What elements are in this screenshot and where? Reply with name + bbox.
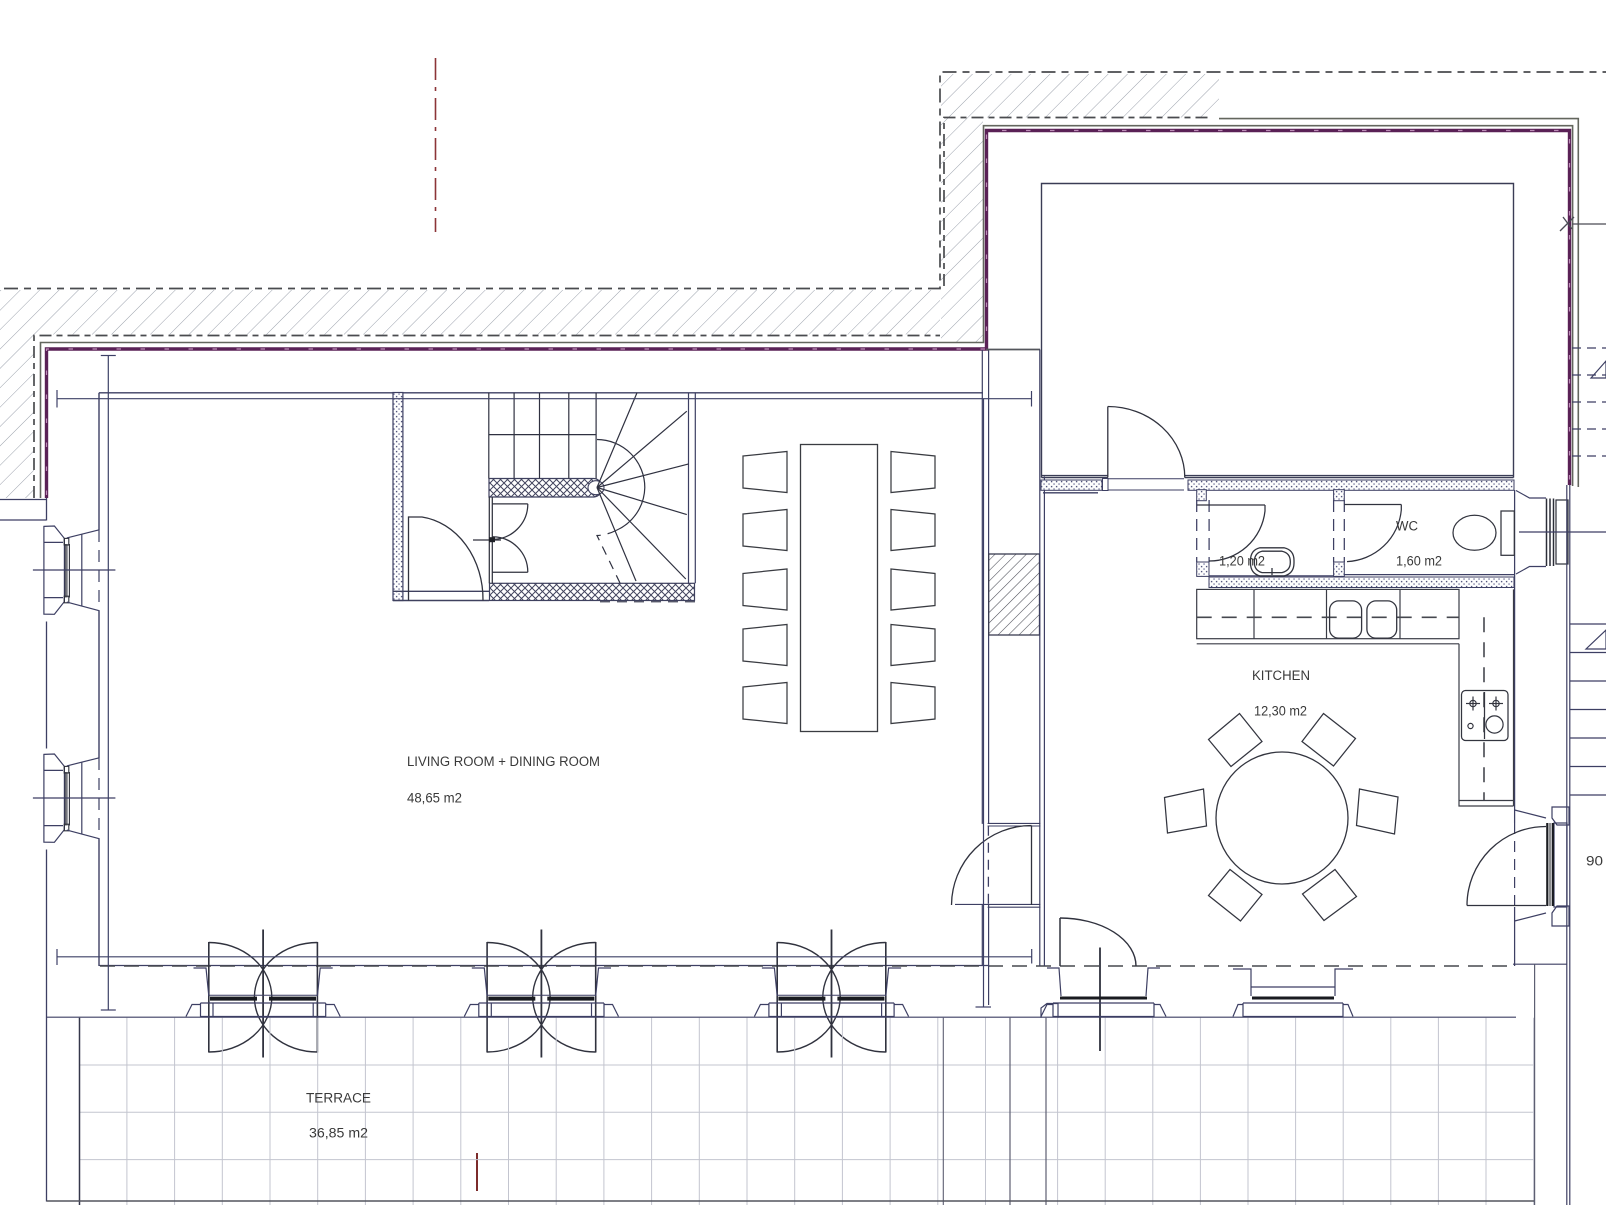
svg-text:WC: WC [1396, 519, 1418, 535]
svg-text:12,30 m2: 12,30 m2 [1254, 704, 1307, 720]
svg-text:1,20 m2: 1,20 m2 [1219, 554, 1265, 570]
svg-text:KITCHEN: KITCHEN [1252, 668, 1310, 684]
svg-text:36,85 m2: 36,85 m2 [309, 1126, 368, 1142]
svg-text:1,60 m2: 1,60 m2 [1396, 554, 1442, 570]
svg-text:48,65 m2: 48,65 m2 [407, 791, 462, 807]
svg-text:90: 90 [1586, 854, 1603, 870]
svg-text:TERRACE: TERRACE [306, 1091, 371, 1107]
svg-text:LIVING ROOM + DINING ROOM: LIVING ROOM + DINING ROOM [407, 754, 600, 770]
